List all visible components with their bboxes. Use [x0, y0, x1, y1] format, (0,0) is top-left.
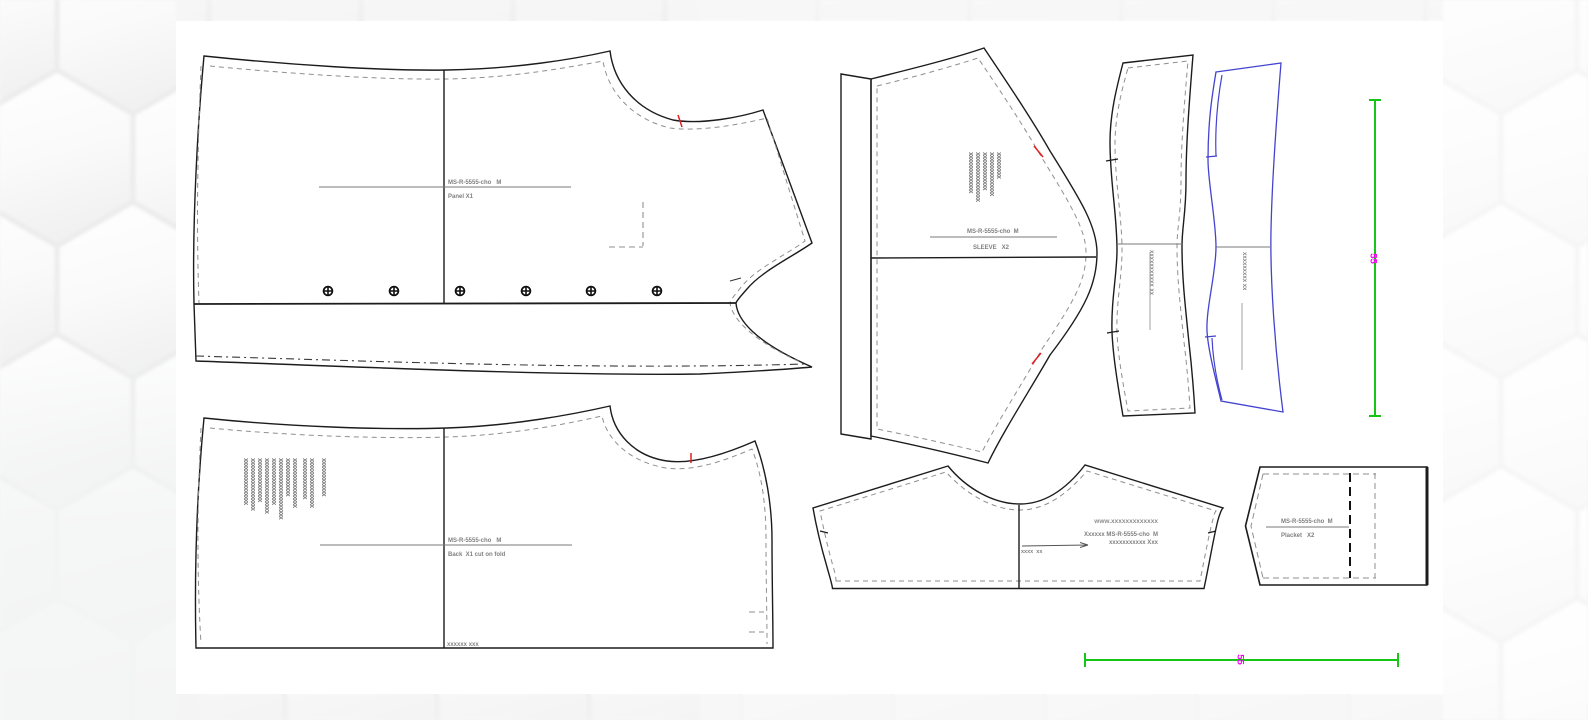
svg-text:Placket X2: Placket X2	[1281, 533, 1315, 539]
svg-text:MS-R-5555-cho M: MS-R-5555-cho M	[1281, 519, 1333, 525]
svg-text:xxxxxxxxxxxxxxxxxxx: xxxxxxxxxxxxxxxxxxx	[263, 458, 270, 514]
svg-text:MS-R-5555-cho M: MS-R-5555-cho M	[448, 538, 501, 544]
svg-text:xxxxxxxxxxxxxxxxx: xxxxxxxxxxxxxxxxx	[291, 458, 298, 508]
svg-text:xxxxxxxxxxxxxx: xxxxxxxxxxxxxx	[967, 152, 974, 194]
svg-text:xxxxxxxxxxx Xxx: xxxxxxxxxxx Xxx	[1109, 540, 1159, 546]
svg-text:Panel X1: Panel X1	[448, 194, 474, 200]
svg-text:www.xxxxxxxxxxxxx: www.xxxxxxxxxxxxx	[1093, 518, 1158, 525]
svg-text:55: 55	[1368, 253, 1379, 264]
svg-text:xxxxxxxxxxxxxxxxxxxxx: xxxxxxxxxxxxxxxxxxxxx	[277, 458, 284, 520]
svg-text:xxxxxxxxxxxxxxx: xxxxxxxxxxxxxxx	[256, 458, 263, 503]
svg-text:xxxxxxxxxxxxx: xxxxxxxxxxxxx	[284, 458, 291, 497]
svg-text:SLEEVE X2: SLEEVE X2	[973, 245, 1010, 251]
svg-text:xxxxxxxxxxxxxxx: xxxxxxxxxxxxxxx	[988, 152, 995, 197]
svg-text:Xxxxxx MS-R-5555-cho M: Xxxxxx MS-R-5555-cho M	[1084, 532, 1158, 538]
svg-text:xxxxxxxxx: xxxxxxxxx	[995, 152, 1002, 179]
svg-text:xxxxxxxxxxxxxxxx: xxxxxxxxxxxxxxxx	[242, 458, 249, 505]
svg-text:xxxxxxxxxxxxxxxxx: xxxxxxxxxxxxxxxxx	[974, 152, 981, 202]
svg-text:xxxxxx xxx: xxxxxx xxx	[447, 642, 479, 648]
svg-text:MS-R-5555-cho M: MS-R-5555-cho M	[448, 180, 501, 186]
svg-text:xxxxxxxxxxxxxxxxx: xxxxxxxxxxxxxxxxx	[308, 458, 315, 508]
svg-text:xxxxxxxxx xx: xxxxxxxxx xx	[1241, 252, 1247, 291]
svg-text:Back X1 cut on fold: Back X1 cut on fold	[448, 552, 506, 558]
svg-text:55: 55	[1235, 654, 1246, 665]
svg-text:xxxxxxxxxxxxx: xxxxxxxxxxxxx	[981, 152, 988, 191]
svg-text:xxxxxxxxxxx xx: xxxxxxxxxxx xx	[1148, 250, 1154, 296]
svg-text:MS-R-5555-cho M: MS-R-5555-cho M	[967, 229, 1019, 235]
svg-text:xxxxxxxxxxxxxxxxxx: xxxxxxxxxxxxxxxxxx	[249, 458, 256, 511]
svg-text:xxxxxxxxxxxxxxxx: xxxxxxxxxxxxxxxx	[270, 458, 277, 505]
svg-text:xxxxxxxxxxxxx: xxxxxxxxxxxxx	[320, 458, 327, 497]
svg-text:xxxxxxxxxxxxxx: xxxxxxxxxxxxxx	[301, 458, 308, 500]
svg-text:xxxx xx: xxxx xx	[1021, 549, 1043, 555]
